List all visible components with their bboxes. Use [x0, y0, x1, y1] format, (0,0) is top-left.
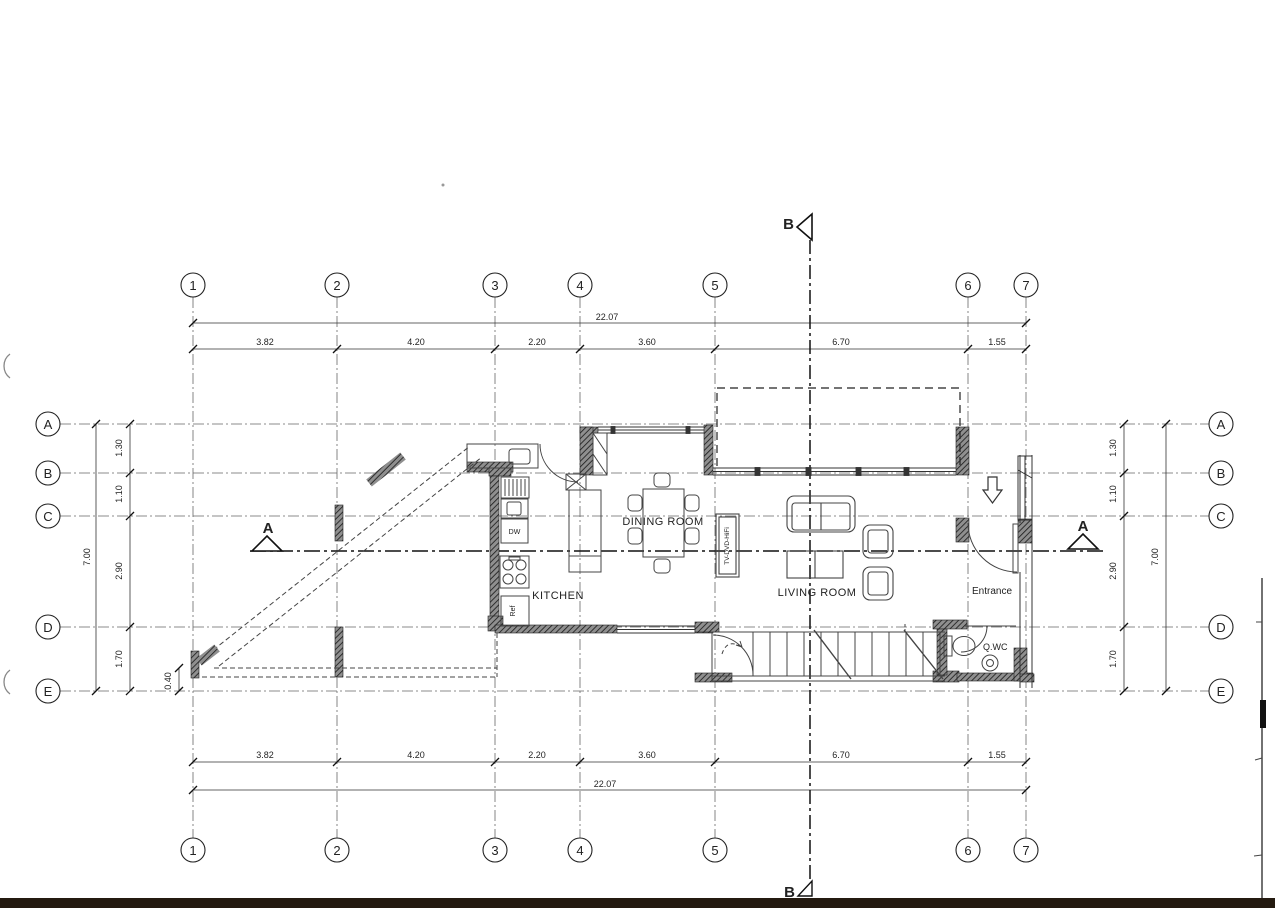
dimension-lines — [96, 323, 1166, 790]
grid-bubble-labels-top: 1 2 3 4 5 6 7 — [189, 278, 1029, 293]
grid-bubbles-right — [1209, 412, 1233, 703]
grid-row-label: D — [43, 620, 52, 635]
dining-chair — [685, 528, 699, 544]
dim-label: 3.82 — [256, 750, 274, 760]
dim-label: 1.55 — [988, 750, 1006, 760]
dining-chair — [654, 473, 670, 487]
grid-row-label: D — [1216, 620, 1225, 635]
range-hood — [501, 477, 529, 498]
carport-wall-segments — [199, 456, 403, 662]
dim-label: 1.30 — [114, 439, 124, 457]
walls — [191, 425, 1034, 682]
section-b-arrow-bottom — [798, 881, 812, 896]
grid-bubbles-top — [181, 273, 1038, 297]
dim-label: 2.20 — [528, 337, 546, 347]
entrance-arrow-icon — [983, 477, 1002, 503]
grid-col-label: 7 — [1022, 278, 1029, 293]
speck — [442, 184, 445, 187]
living-room-furniture — [716, 496, 893, 600]
grid-bubbles-left — [36, 412, 60, 703]
dishwasher-label: DW — [509, 529, 521, 536]
stairs — [712, 622, 945, 681]
grid-bubbles-bottom — [181, 838, 1038, 862]
grid-lines — [60, 297, 1209, 838]
dining-chair — [654, 559, 670, 573]
page-bottom-edge — [0, 898, 1275, 908]
grid-row-label: A — [44, 417, 53, 432]
dim-label: 3.60 — [638, 337, 656, 347]
grid-col-label: 1 — [189, 843, 196, 858]
grid-col-label: 5 — [711, 278, 718, 293]
sofa — [787, 496, 855, 532]
grid-col-label: 6 — [964, 278, 971, 293]
dining-chair — [628, 528, 642, 544]
binder-mark — [4, 670, 10, 694]
grid-col-label: 4 — [576, 278, 583, 293]
grid-col-label: 3 — [491, 843, 498, 858]
grid-row-label: B — [44, 466, 53, 481]
section-b-arrow-top — [797, 214, 812, 240]
grid-row-label: E — [1217, 684, 1226, 699]
dim-label: 1.55 — [988, 337, 1006, 347]
armchair — [863, 525, 893, 558]
grid-col-label: 3 — [491, 278, 498, 293]
kitchen-island — [569, 490, 601, 572]
floor-plan-sheet: 1 2 3 4 5 6 7 1 2 3 4 5 6 7 A B C D E A … — [0, 0, 1275, 908]
dim-label: 3.82 — [256, 337, 274, 347]
dim-label: 1.30 — [1108, 439, 1118, 457]
dim-label: 1.10 — [114, 485, 124, 503]
section-b-label-top: B — [783, 216, 794, 233]
window-living-band — [713, 468, 956, 476]
grid-row-label: E — [44, 684, 53, 699]
stair-door-arc — [713, 635, 753, 675]
dim-label: 2.90 — [114, 562, 124, 580]
oven — [501, 499, 528, 518]
stair-break-line — [814, 630, 851, 679]
binder-mark — [4, 354, 10, 378]
grid-bubble-labels-right: A B C D E — [1216, 417, 1225, 699]
dim-label: 3.60 — [638, 750, 656, 760]
room-label-living: LIVING ROOM — [778, 587, 857, 599]
grid-col-label: 4 — [576, 843, 583, 858]
section-a-label-right: A — [1078, 518, 1089, 535]
toilet — [944, 636, 975, 656]
dim-label: 1.70 — [114, 650, 124, 668]
kitchen-door-arc — [540, 444, 578, 482]
grid-col-label: 2 — [333, 843, 340, 858]
refrigerator-label: Ref — [510, 606, 517, 617]
window-north-dining — [598, 427, 704, 434]
dim-label: 22.07 — [596, 312, 619, 322]
dimension-ticks — [92, 319, 1170, 794]
dim-label: 6.70 — [832, 750, 850, 760]
grid-row-label: B — [1217, 466, 1226, 481]
coffee-table — [787, 551, 843, 578]
section-a-label-left: A — [263, 520, 274, 537]
grid-bubble-labels-bottom: 1 2 3 4 5 6 7 — [189, 843, 1029, 858]
dim-label: 22.07 — [594, 779, 617, 789]
cooktop — [500, 556, 529, 588]
tv-unit-label: TV-DVD-HiFi — [724, 527, 731, 565]
dim-label: 2.90 — [1108, 562, 1118, 580]
armchair — [863, 567, 893, 600]
grid-col-label: 7 — [1022, 843, 1029, 858]
dim-label: 7.00 — [1150, 548, 1160, 566]
dining-chair — [685, 495, 699, 511]
dim-label: 4.20 — [407, 750, 425, 760]
grid-col-label: 1 — [189, 278, 196, 293]
room-label-wc: Q.WC — [983, 642, 1008, 652]
room-label-dining: DINING ROOM — [622, 516, 703, 528]
grid-col-label: 2 — [333, 278, 340, 293]
stair-direction-arrow — [722, 644, 742, 654]
dim-label: 0.40 — [163, 672, 173, 690]
dim-label: 2.20 — [528, 750, 546, 760]
grid-row-label: C — [1216, 509, 1225, 524]
grid-bubble-labels-left: A B C D E — [43, 417, 52, 699]
dim-label: 6.70 — [832, 337, 850, 347]
grid-col-label: 6 — [964, 843, 971, 858]
dim-label: 1.10 — [1108, 485, 1118, 503]
dim-label: 7.00 — [82, 548, 92, 566]
carport-outline — [202, 446, 497, 677]
floor-plan-drawing: 1 2 3 4 5 6 7 1 2 3 4 5 6 7 A B C D E A … — [0, 0, 1275, 908]
room-label-entrance: Entrance — [972, 586, 1012, 597]
grid-row-label: C — [43, 509, 52, 524]
grid-col-label: 5 — [711, 843, 718, 858]
section-a-arrow-left — [252, 536, 282, 551]
grid-row-label: A — [1217, 417, 1226, 432]
dining-chair — [628, 495, 642, 511]
entrance-door — [968, 523, 1018, 573]
wash-basin — [982, 655, 998, 671]
dim-label: 4.20 — [407, 337, 425, 347]
upper-floor-dashed-outline — [717, 388, 960, 466]
dim-label: 1.70 — [1108, 650, 1118, 668]
room-label-kitchen: KITCHEN — [532, 590, 584, 602]
section-a-arrow-right — [1068, 534, 1098, 549]
